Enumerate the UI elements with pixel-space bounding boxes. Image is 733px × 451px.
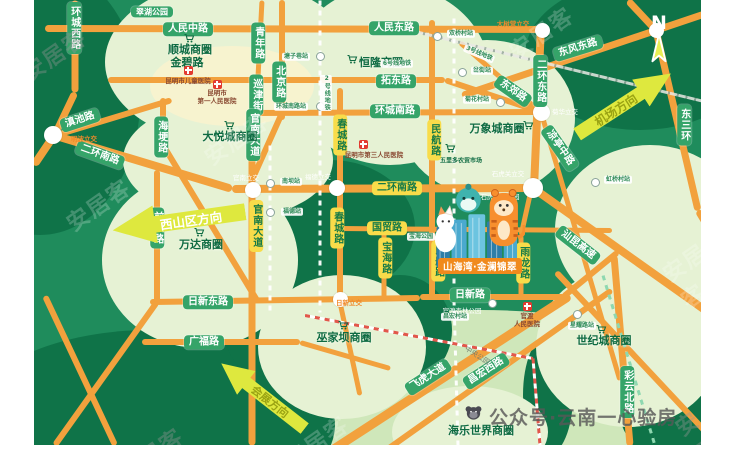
road-label: 北京路	[272, 62, 286, 103]
road-label: 二环南路	[372, 181, 422, 195]
interchange-circle	[44, 126, 62, 144]
hospital-cross-icon	[213, 80, 222, 89]
metro-station-label: 南坝站	[280, 178, 302, 186]
footer-watermark: 公众号·云南一心验房	[489, 403, 677, 430]
map-label: 2号线地铁	[320, 75, 332, 111]
map-label: 昆明市儿童医院	[165, 77, 211, 85]
map-label: 明波立交	[71, 135, 97, 143]
metro-station-icon	[316, 52, 325, 61]
map-screenshot: 西山区方向 机场方向 会展方向	[0, 0, 733, 451]
compass-north-label: N	[646, 14, 672, 33]
hospital-cross-icon	[523, 302, 532, 311]
district-label: 万象城商圈	[470, 122, 525, 136]
road-label: 人民东路	[369, 21, 419, 35]
shopping-cart-icon	[346, 53, 358, 65]
road-label: 春城路	[330, 208, 344, 249]
map-world: 西山区方向 机场方向 会展方向	[34, 0, 701, 445]
metro-station-icon	[458, 68, 467, 77]
metro-station-icon	[496, 98, 505, 107]
metro-line	[269, 145, 272, 315]
road-label: 广福路	[184, 335, 224, 349]
road-label: 官南大道	[249, 200, 263, 252]
map-label: 福德立交	[305, 173, 331, 181]
map-label: 宝海公园	[407, 233, 435, 241]
road-label: 日新路	[450, 288, 490, 302]
interchange-circle	[329, 180, 345, 196]
compass-needle-icon	[648, 33, 670, 65]
metro-station-label: 岔街站	[471, 67, 493, 75]
road-label: 海埂路	[154, 117, 168, 158]
map-label: 昆明市第三人民医院	[345, 151, 404, 159]
hospital-cross-icon	[359, 140, 368, 149]
map-label: 大树营立交	[497, 20, 530, 28]
shopping-cart-icon	[223, 119, 235, 131]
shopping-cart-icon	[444, 142, 456, 154]
metro-station-label: 双桥村站	[447, 30, 475, 38]
district-label: 万达商圈	[179, 238, 223, 252]
map-label: 五里多农贸市场	[440, 157, 482, 165]
interchange-circle	[535, 23, 550, 38]
project-name-banner: 山海湾·金澜锦翠	[438, 258, 522, 274]
gorilla-landmark-icon	[465, 405, 482, 420]
metro-station-label: 福德站	[281, 208, 303, 216]
road-label: 东三环	[677, 105, 691, 146]
shopping-cart-icon	[337, 319, 349, 331]
map-canvas: 西山区方向 机场方向 会展方向	[34, 0, 701, 445]
district-label: 顺城商圈	[168, 43, 212, 57]
road-label: 民航路	[427, 120, 441, 161]
road-label: 拓东路	[376, 74, 416, 88]
road-label: 二环东路	[533, 55, 547, 107]
road-label: 环城西路	[67, 2, 81, 54]
compass: N	[646, 14, 672, 69]
project-mascots-and-buildings	[433, 180, 525, 268]
shopping-cart-icon	[193, 226, 205, 238]
road-label: 日新东路	[183, 295, 233, 309]
metro-station-icon	[266, 179, 275, 188]
road-label: 环城南路	[370, 104, 420, 118]
road-label: 宝海路	[378, 238, 392, 279]
metro-station-icon	[266, 208, 275, 217]
metro-line	[319, 0, 322, 312]
metro-station-label: 菊花村站	[463, 96, 491, 104]
map-label: 石虎关立交	[492, 170, 525, 178]
map-label: 日新立交	[336, 299, 362, 307]
district-label: 世纪城商圈	[577, 334, 632, 348]
metro-station-label: 塘子巷站	[282, 53, 310, 61]
map-label: 6号线地铁	[381, 60, 413, 68]
map-label: 官渡人民医院	[514, 312, 540, 328]
metro-station-label: 环城南路站	[274, 103, 308, 111]
metro-station-icon	[573, 310, 582, 319]
metro-station-label: 昌宏村站	[441, 313, 469, 321]
metro-station-label: 星耀路站	[568, 322, 596, 330]
shopping-cart-icon	[522, 119, 534, 131]
shopping-cart-icon	[595, 323, 607, 335]
district-label: 巫家坝商圈	[317, 331, 372, 345]
interchange-circle	[523, 178, 543, 198]
metro-station-icon	[433, 32, 442, 41]
map-label: 官南立交	[233, 174, 259, 182]
interchange-circle	[245, 182, 261, 198]
shopping-cart-icon	[183, 32, 195, 44]
road-label: 春城路	[333, 115, 347, 156]
map-label: 菊华立交	[552, 108, 578, 116]
road-label: 国贸路	[367, 221, 407, 235]
hospital-cross-icon	[184, 66, 193, 75]
map-label: 昆明市第一人民医院	[198, 89, 237, 105]
metro-station-label: 虹桥村站	[604, 176, 632, 184]
district-label: 大悦城商圈	[203, 130, 258, 144]
metro-station-icon	[591, 178, 600, 187]
road-label: 青年路	[251, 23, 265, 64]
park-label: 翠湖公园	[131, 6, 173, 17]
